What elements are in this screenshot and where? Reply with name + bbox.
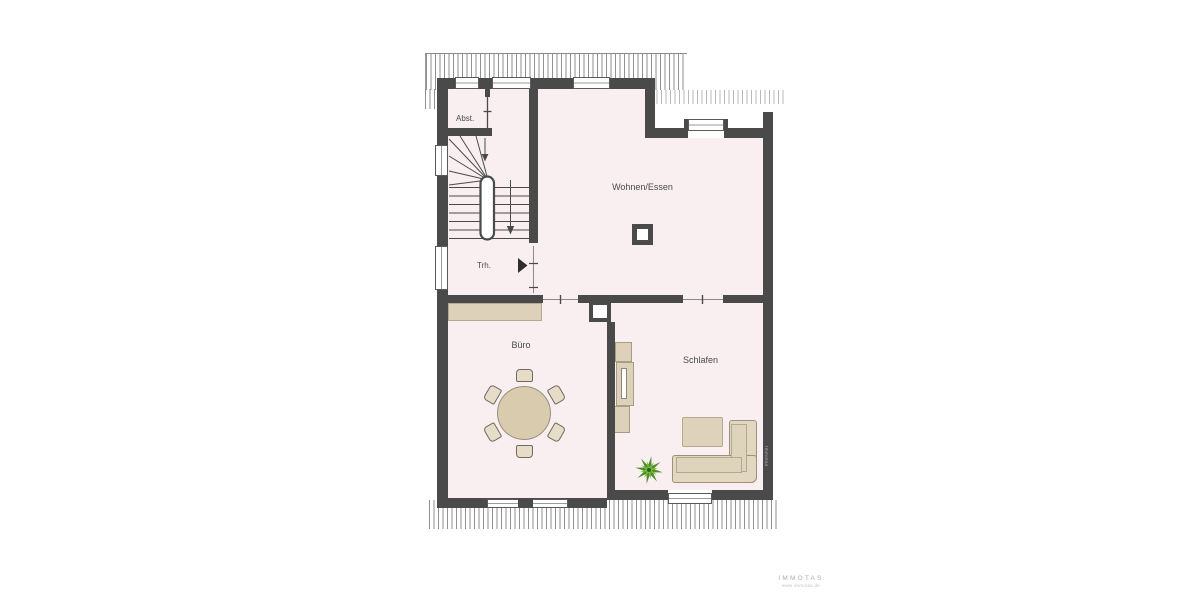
wall-left — [437, 78, 448, 508]
wall-schlafen-bottom-left — [607, 490, 668, 500]
coffee-table — [682, 417, 723, 447]
window-alcove — [688, 119, 724, 131]
window-pier — [518, 498, 533, 508]
room-label-wohnen: Wohnen/Essen — [590, 182, 695, 193]
chair — [516, 445, 533, 458]
doorway-trh-wohnen — [529, 243, 538, 295]
wall-partition-stub — [485, 89, 490, 97]
wall-divider-buero-schlafen — [607, 322, 615, 498]
floor-plan-canvas: Abst. Trh. Wohnen/Essen Büro Schlafen Im… — [0, 0, 1200, 600]
watermark: IMMOTAS www.immotas.de — [765, 575, 837, 588]
wall-middle-seg3 — [723, 295, 773, 303]
window — [492, 77, 531, 89]
doorway-wohnen-schlafen — [683, 295, 723, 303]
room-label-trh: Trh. — [477, 260, 491, 271]
chimney-box — [632, 224, 653, 245]
wall-alcove-left — [645, 128, 688, 138]
wall-corner-step — [645, 89, 655, 128]
dining-table — [497, 386, 551, 440]
room-label-abst: Abst. — [456, 113, 474, 124]
room-label-schlafen: Schlafen — [666, 355, 735, 366]
doorway-wohnen-buero — [543, 295, 578, 303]
wardrobe-bottom — [614, 406, 630, 433]
wall-alcove-right — [724, 128, 763, 138]
window — [455, 77, 479, 89]
room-label-buero: Büro — [494, 340, 548, 351]
window-schlafen — [668, 493, 712, 504]
wall-middle-seg1 — [437, 295, 543, 303]
wardrobe-top — [615, 342, 632, 362]
wall-abst-bottom — [437, 128, 492, 136]
watermark-side-text: Immotas — [764, 446, 769, 467]
room-wohnen-alcove-floor — [655, 138, 763, 295]
wall-right — [763, 112, 773, 500]
wall-schlafen-bottom-right — [712, 490, 763, 500]
window — [573, 77, 610, 89]
chair — [516, 369, 533, 382]
window — [435, 246, 448, 290]
sofa-seat-bottom — [676, 457, 742, 473]
wardrobe-slot — [621, 368, 627, 399]
window — [435, 145, 448, 176]
roof-hatch-left-strip — [425, 89, 437, 109]
wall-stairhall-right — [529, 89, 538, 243]
shaft-box — [589, 301, 611, 322]
watermark-brand: IMMOTAS — [765, 575, 837, 583]
watermark-url: www.immotas.de — [765, 583, 837, 588]
sideboard — [448, 303, 542, 321]
roof-hatch-top-right — [652, 90, 786, 104]
